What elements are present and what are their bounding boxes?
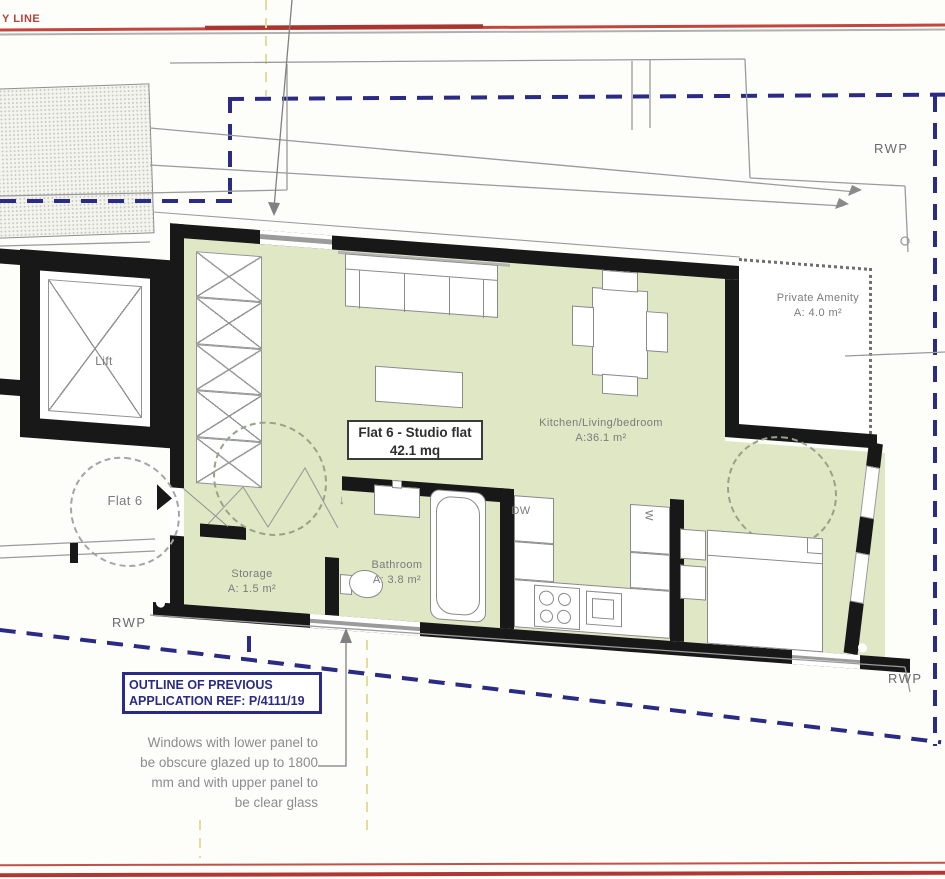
- hall-label-text: Flat 6: [108, 493, 143, 508]
- dishwasher-label: DW: [501, 504, 541, 519]
- rwp-dot-right: [858, 643, 867, 653]
- rwp-label-left: RWP: [112, 615, 147, 630]
- dining-table: [592, 287, 648, 379]
- nightstand: [680, 529, 706, 561]
- bathroom-label: Bathroom A: 3.8 m²: [347, 558, 447, 588]
- rwp-label-top-right: RWP: [874, 141, 909, 156]
- rwp-dot-left: [156, 598, 165, 608]
- wall-segment: [866, 442, 883, 468]
- bathtub-inner: [436, 495, 480, 616]
- balcony: [739, 258, 872, 434]
- stair-cell: [196, 344, 262, 395]
- lift-label: Lift: [74, 354, 134, 369]
- glazing-note-line1: Windows with lower panel to: [58, 733, 318, 753]
- rwp-label-bottom-right: RWP: [888, 671, 923, 686]
- boundary-line-label: Y LINE: [2, 13, 40, 25]
- turning-circle-hall: [70, 453, 180, 571]
- basin-tap: [392, 480, 402, 489]
- kitchen-sink-bowl: [592, 598, 614, 620]
- dining-chair: [602, 374, 638, 397]
- hall-label: Flat 6: [85, 493, 165, 508]
- hob-burner: [557, 609, 571, 624]
- kitchen-living-name: Kitchen/Living/bedroom: [521, 416, 681, 431]
- prev-outline-left-upper: [228, 97, 232, 201]
- unit-name: Flat 6 - Studio flat: [349, 424, 481, 442]
- bed: [707, 530, 823, 653]
- boundary-line-bottom-1: [0, 862, 945, 866]
- washer-label: W: [641, 506, 656, 526]
- hob-burner: [539, 590, 554, 606]
- kitchen-unit: [630, 552, 670, 591]
- wall-left: [170, 223, 184, 606]
- private-amenity-name: Private Amenity: [758, 291, 878, 306]
- bathroom-arrow: ↓: [332, 492, 352, 507]
- wall-edge-stub-1: [0, 248, 20, 265]
- bathroom-name: Bathroom: [347, 558, 447, 573]
- wall-bathroom-left: [325, 557, 339, 616]
- dining-chair: [602, 270, 638, 293]
- building-plan: [20, 212, 925, 712]
- kitchen-living-label: Kitchen/Living/bedroom A:36.1 m²: [521, 416, 681, 446]
- private-amenity-area: A: 4.0 m²: [758, 306, 878, 321]
- storage-name: Storage: [202, 567, 302, 582]
- outline-note-line1: OUTLINE OF PREVIOUS: [129, 677, 315, 693]
- glazing-note-line2: be obscure glazed up to 1800: [58, 753, 318, 773]
- stair-cell: [196, 298, 262, 349]
- dining-chair: [572, 306, 594, 348]
- kitchen-living-area: A:36.1 m²: [521, 431, 681, 446]
- hob-burner: [558, 592, 571, 606]
- wall-edge-stub-2: [0, 378, 20, 396]
- yellow-dash-top: [265, 0, 267, 96]
- storage-label: Storage A: 1.5 m²: [202, 567, 302, 597]
- floor-plan-drawing: Y LINE: [0, 0, 945, 879]
- dining-chair: [646, 311, 668, 353]
- glazing-note-line4: be clear glass: [58, 793, 318, 813]
- unit-area: 42.1 mq: [349, 442, 481, 460]
- outline-note-box: OUTLINE OF PREVIOUS APPLICATION REF: P/4…: [122, 672, 322, 714]
- coffee-table: [375, 366, 463, 409]
- dishwasher-unit: [514, 495, 554, 544]
- unit-label-box: Flat 6 - Studio flat 42.1 mq: [347, 420, 483, 460]
- glazing-note: Windows with lower panel to be obscure g…: [58, 733, 318, 813]
- prev-outline-right: [933, 96, 937, 746]
- glazing-note-line3: mm and with upper panel to: [58, 773, 318, 793]
- lift-x-symbol: [48, 279, 142, 418]
- stair-cell: [196, 251, 262, 302]
- lift-label-text: Lift: [95, 354, 113, 368]
- wall-balcony-left: [725, 279, 739, 435]
- hob-burner: [540, 609, 553, 623]
- boundary-line-bottom-2: [0, 871, 945, 877]
- kitchen-unit: [514, 541, 554, 582]
- prev-outline-top: [228, 93, 945, 101]
- outline-note-line2: APPLICATION REF: P/4111/19: [129, 693, 315, 709]
- prev-outline-jog: [247, 636, 251, 654]
- prev-outline-left-horizontal: [0, 199, 232, 203]
- nightstand: [680, 565, 706, 601]
- yellow-dash-bottom: [199, 820, 201, 858]
- private-amenity-label: Private Amenity A: 4.0 m²: [758, 291, 878, 321]
- bathroom-basin: [374, 485, 420, 518]
- bathroom-area: A: 3.8 m²: [347, 573, 447, 588]
- storage-area: A: 1.5 m²: [202, 582, 302, 597]
